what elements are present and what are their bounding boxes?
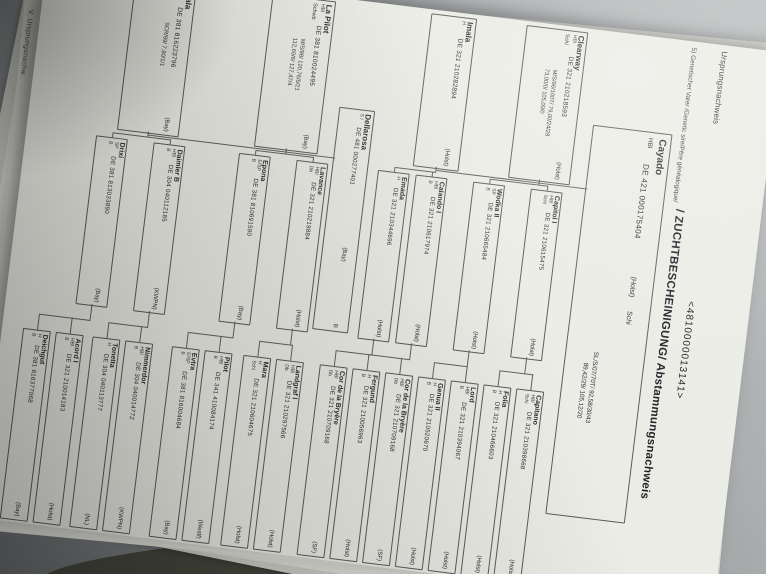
color-abbr: B: [107, 141, 113, 148]
pedigree-box-imala: Imala HDE 321 210282894(Holst): [413, 13, 477, 171]
connector-line: [530, 374, 533, 390]
connector-line: [334, 350, 337, 366]
connector-line: [40, 314, 91, 321]
color-abbr: B: [132, 345, 138, 354]
connector-line: [233, 322, 236, 338]
color-abbr: Schi: [541, 194, 548, 204]
studbook-abbr: H: [460, 21, 466, 25]
connector-line: [186, 332, 189, 348]
connector-line: [367, 354, 370, 370]
pedigree-box-duala: Duala SPBDE 381 816223796(Bay) SCR/99/ 7…: [117, 0, 197, 137]
color-abbr: B: [331, 319, 338, 328]
studbook-abbr: H: [394, 176, 400, 180]
color-abbr: B: [425, 381, 431, 385]
connector-line: [498, 370, 501, 386]
connector-line: [106, 322, 109, 338]
studbook-abbr: H: [496, 390, 502, 394]
performance-results: SL/S/07/70T/ 92,58/30/43 89,42/29/ 105,1…: [573, 350, 600, 424]
connector-line: [260, 341, 293, 346]
studbook-abbr: H: [105, 342, 111, 346]
studbook-abbr: S I: [358, 113, 364, 120]
pedigree-box-daimler-b: Daimler B HBlB DE 304 040112185 (KWPN): [133, 142, 185, 315]
connector-line: [219, 336, 222, 352]
connector-line: [337, 350, 373, 355]
color-abbr: B: [211, 355, 217, 364]
color-abbr: Schi: [250, 360, 257, 370]
connector-line: [500, 370, 533, 375]
connector-line: [70, 318, 73, 334]
pedigree-box-wodka-ii: Wodka II SPB DE 321 210665484 (Holst): [453, 182, 505, 355]
color-abbr: Db: [307, 165, 313, 174]
connector-line: [465, 366, 468, 382]
color-abbr: B: [164, 148, 170, 157]
studbook-abbr: H: [431, 382, 437, 386]
color-abbr: Schi: [624, 311, 633, 325]
connector-line: [139, 326, 142, 342]
pedigree-box-la-pilot: La Pilot HBlDE 381 810024495(Bay) Schwb …: [254, 0, 336, 154]
connector-line: [147, 311, 150, 327]
connector-line: [467, 350, 470, 366]
connector-line: [257, 341, 260, 357]
connector-line: [290, 329, 293, 345]
studbook-abbr: HBl: [570, 34, 576, 43]
color-abbr: B: [491, 389, 497, 393]
breed-label: (Holst): [627, 272, 637, 297]
color-abbr: Db: [392, 377, 398, 386]
studbook-abbr: HBl: [318, 4, 324, 13]
connector-line: [109, 322, 148, 328]
pedigree-box-clearway: Clearway HBlDE 321 210218593(Holst) Schi…: [508, 25, 588, 185]
pedigree-box-capitol-i: Capitol I HBlSchi DE 321 210615475 (Hols…: [510, 189, 562, 362]
connector-line: [371, 339, 374, 355]
color-abbr: Schi: [523, 393, 530, 403]
color-abbr: B: [484, 187, 490, 194]
connector-line: [37, 314, 40, 330]
origin-section-label: Ursprungsnachweis: [711, 51, 729, 125]
photo-of-breeding-certificate: V. Ursprungsnachw. Ursprungsnachweis 5) …: [0, 0, 766, 574]
certificate-page: Ursprungsnachweis 5) Genetischer Vater /…: [0, 0, 766, 574]
connector-line: [432, 362, 435, 378]
studbook-abbr: H: [36, 333, 42, 337]
studbook-abbr: HBl: [646, 137, 654, 148]
pedigree-box-drixi: Drixi SPB DE 381 813033890 (Bay): [75, 135, 127, 308]
pedigree-document: Ursprungsnachweis 5) Genetischer Vater /…: [0, 0, 766, 574]
connector-line: [399, 358, 402, 374]
color-abbr: B: [457, 385, 463, 394]
connector-line: [189, 332, 234, 338]
connector-line: [369, 354, 410, 360]
color-abbr: B: [62, 337, 68, 346]
genetic-sire-label: 5) Genetischer Vater /Genetic sire/Père …: [671, 47, 697, 203]
connector-line: [290, 345, 293, 361]
connector-line: [524, 357, 527, 373]
connector-line: [90, 304, 93, 320]
certificate-barcode-number: <4810000013141>: [673, 300, 696, 400]
connector-line: [409, 343, 412, 359]
color-abbr: Db: [283, 364, 289, 373]
color-abbr: B: [30, 333, 36, 337]
pedigree-box-epona: Epona E/SPB DE 381 810691590 (Bay): [218, 153, 270, 326]
color-abbr: B: [360, 373, 366, 377]
studbook-abbr: H: [365, 374, 371, 378]
connector-line: [435, 362, 468, 367]
color-abbr: Db: [326, 369, 332, 378]
color-abbr: B: [426, 180, 432, 189]
